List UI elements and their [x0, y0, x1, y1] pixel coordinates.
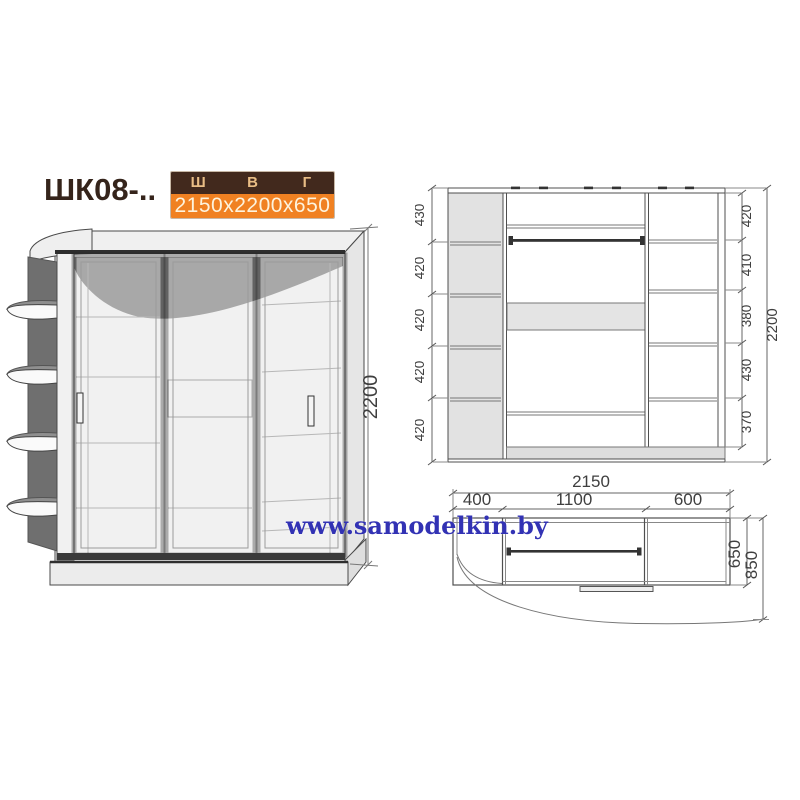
front-right-dim-2: 410 — [739, 254, 754, 277]
spec-col-depth: Г — [280, 172, 334, 194]
front-left-dim-1: 430 — [415, 204, 427, 227]
sliding-doors — [74, 255, 345, 555]
page-title: ШК08-.. — [44, 170, 174, 210]
front-left-dim-4: 420 — [415, 361, 427, 384]
plan-section-2-label: 1100 — [556, 490, 593, 509]
front-left-dim-2: 420 — [415, 257, 427, 280]
door-handle-right — [308, 396, 314, 426]
front-right-dim-4: 430 — [739, 359, 754, 382]
plan-door-panel — [580, 587, 653, 592]
perspective-height-label: 2200 — [360, 375, 382, 420]
spec-col-width: Ш — [171, 172, 225, 194]
plan-total-depth-label: 850 — [742, 551, 761, 579]
watermark: www.samodelkin.by — [286, 511, 516, 540]
front-left-dim-5: 420 — [415, 419, 427, 442]
perspective-view: 2200 — [0, 205, 410, 605]
spec-table-header: Ш В Г — [171, 172, 334, 194]
front-cabinet — [448, 187, 725, 462]
top-view: 2150 400 1100 600 650 850 — [413, 455, 800, 640]
front-total-height-label: 2200 — [764, 308, 781, 341]
front-view: 430 420 420 420 420 420 410 380 430 370 … — [415, 168, 800, 468]
door-handle-left — [77, 393, 83, 423]
plan-total-width-label: 2150 — [572, 472, 610, 491]
front-right-dim-5: 370 — [739, 411, 754, 434]
plan-section-3-label: 600 — [674, 490, 702, 509]
spec-col-height: В — [225, 172, 279, 194]
plan-section-1-label: 400 — [463, 490, 491, 509]
front-right-dim-1: 420 — [739, 205, 754, 228]
front-right-dim-3: 380 — [739, 305, 754, 328]
drawer-block — [507, 303, 645, 330]
front-left-dim-3: 420 — [415, 309, 427, 332]
